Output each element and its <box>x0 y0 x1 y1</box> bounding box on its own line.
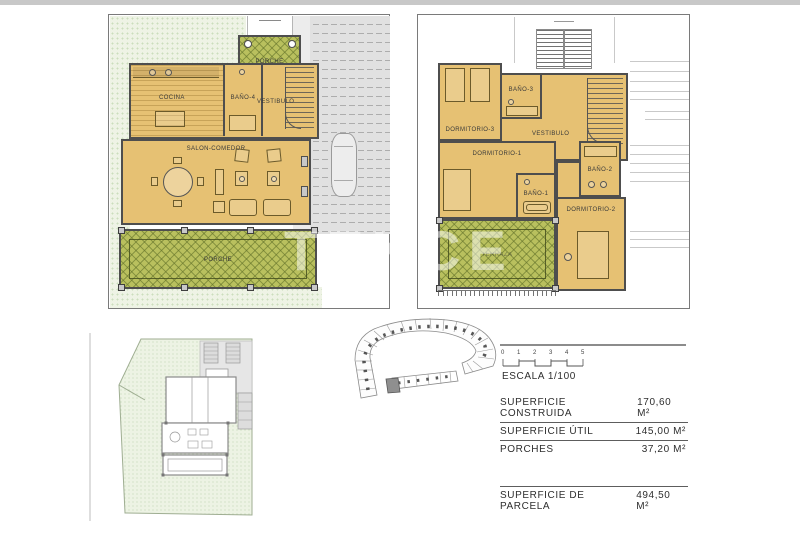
roof-line <box>630 91 689 92</box>
room-cocina: COCINA <box>131 65 223 136</box>
scale-bar <box>502 357 586 369</box>
highlighted-plot <box>386 378 400 393</box>
footprint-upper <box>166 377 236 423</box>
site-stair <box>204 343 218 363</box>
porch-column <box>247 284 254 291</box>
roof-line <box>630 163 689 164</box>
car-icon <box>331 133 357 197</box>
stair-flight <box>537 30 563 68</box>
shower-icon <box>229 115 256 131</box>
footprint-porch-bottom <box>163 455 227 475</box>
terrace-column <box>552 217 559 224</box>
scale-tick-4: 4 <box>565 350 568 356</box>
room-bano4: BAÑO-4 <box>225 65 261 136</box>
porch-column <box>244 40 252 48</box>
scale-tick-0: 0 <box>501 350 504 356</box>
bed-icon <box>470 68 490 102</box>
coffee-table <box>213 201 225 213</box>
area-label: SUPERFICIE ÚTIL <box>500 426 593 437</box>
sink-icon <box>508 99 514 105</box>
room-label-bano4: BAÑO-4 <box>225 95 261 101</box>
exterior-staircase <box>536 29 592 69</box>
bathtub-icon <box>506 106 538 116</box>
bathtub-icon <box>584 146 617 157</box>
chair <box>173 157 182 164</box>
bathtub-icon <box>523 201 551 214</box>
room-dormitorio3: DORMITORIO-3 <box>438 63 502 141</box>
room-salon-comedor: SALON-COMEDOR <box>121 139 311 225</box>
chair <box>173 200 182 207</box>
landing-line <box>514 17 515 63</box>
roof-line <box>630 81 689 82</box>
porch-column <box>311 284 318 291</box>
divider-line <box>500 344 686 346</box>
sink-icon <box>600 181 607 188</box>
roof-line <box>630 61 689 62</box>
table-row: SUPERFICIE CONSTRUIDA 170,60 M² <box>500 394 688 423</box>
floor-plan-sheet: PORCHE COCINA BAÑO-4 VESTIBULO <box>0 0 800 533</box>
room-label-bano3: BAÑO-3 <box>502 87 540 93</box>
toilet-icon <box>239 69 245 75</box>
room-label-vestibulo-upper: VESTIBULO <box>532 131 569 137</box>
area-label: PORCHES <box>500 444 554 455</box>
roof-line <box>630 239 689 240</box>
scale-tick-5: 5 <box>581 350 584 356</box>
porch-column <box>288 40 296 48</box>
roof-line <box>630 154 689 155</box>
porch-column <box>118 227 125 234</box>
roof-line <box>630 231 689 232</box>
room-label-dormitorio1: DORMITORIO-1 <box>440 151 554 157</box>
parcel-value: 494,50 M² <box>636 490 686 512</box>
room-label-cocina: COCINA <box>159 95 185 101</box>
garden-texture <box>110 287 322 308</box>
bed-icon <box>445 68 465 102</box>
nightstand-icon <box>564 253 572 261</box>
table-row: SUPERFICIE ÚTIL 145,00 M² <box>500 423 688 441</box>
dimension-mark <box>259 20 281 24</box>
dining-table <box>163 167 193 197</box>
chimney <box>301 156 308 167</box>
scale-label: ESCALA 1/100 <box>502 371 576 382</box>
armchair <box>266 148 281 162</box>
scale-tick-1: 1 <box>517 350 520 356</box>
kitchen-table <box>155 111 185 127</box>
parcel-label: SUPERFICIE DE PARCELA <box>500 490 636 512</box>
kitchen-counter <box>133 67 219 78</box>
sink-icon <box>588 181 595 188</box>
sink-icon <box>524 179 530 185</box>
porch-column <box>181 227 188 234</box>
area-value: 37,20 M² <box>642 444 686 455</box>
side-table <box>267 171 280 186</box>
table-row: SUPERFICIE DE PARCELA 494,50 M² <box>500 487 688 515</box>
cabinet <box>215 169 224 195</box>
house-upper-block: COCINA BAÑO-4 VESTIBULO <box>129 63 319 139</box>
armchair <box>234 148 249 163</box>
garden-texture <box>110 16 246 63</box>
lamp-icon <box>271 176 277 182</box>
sofa <box>263 199 291 216</box>
footprint-salon <box>162 423 228 453</box>
site-plan <box>88 333 283 525</box>
site-stair <box>226 343 240 363</box>
chimney <box>301 186 308 197</box>
porch-column <box>181 284 188 291</box>
roof-line <box>630 145 689 146</box>
room-label-dormitorio3: DORMITORIO-3 <box>440 127 500 133</box>
sofa <box>229 199 257 216</box>
chair <box>151 177 158 186</box>
scale-bar-ticks <box>503 359 583 366</box>
bed-icon <box>443 169 471 211</box>
top-border-strip <box>0 0 800 5</box>
terrace-balustrade <box>438 290 556 296</box>
room-label-bano1: BAÑO-1 <box>518 191 554 197</box>
area-value: 145,00 M² <box>636 426 686 437</box>
porch-column <box>118 284 125 291</box>
side-table <box>235 171 248 186</box>
driveway <box>310 16 390 234</box>
sink-icon <box>149 69 156 76</box>
room-label-salon: SALON-COMEDOR <box>123 146 309 152</box>
scale-bar-steps <box>503 361 583 366</box>
footprint-porch-top <box>206 369 228 377</box>
roof-line <box>630 247 689 248</box>
area-value: 170,60 M² <box>637 397 686 419</box>
entry-walkway <box>247 16 293 35</box>
roof-line <box>645 111 689 112</box>
porch-column <box>247 227 254 234</box>
roof-line <box>645 119 689 120</box>
plot-band-outline <box>355 319 496 398</box>
area-label: SUPERFICIE CONSTRUIDA <box>500 397 637 419</box>
room-bano1: BAÑO-1 <box>516 173 556 219</box>
room-bano2: BAÑO-2 <box>579 141 621 197</box>
roof-line <box>630 172 689 173</box>
parcel-row: SUPERFICIE DE PARCELA 494,50 M² <box>500 486 688 515</box>
watermark-text: TEKCE <box>284 218 514 283</box>
roof-line <box>630 181 689 182</box>
bed-icon <box>577 231 609 279</box>
dimension-mark <box>554 21 574 25</box>
roof-line <box>630 71 689 72</box>
room-dormitorio2: DORMITORIO-2 <box>556 197 626 291</box>
room-vestibulo: VESTIBULO <box>263 65 316 136</box>
landing-line <box>614 17 615 63</box>
table-row: PORCHES 37,20 M² <box>500 441 688 458</box>
lamp-icon <box>239 176 245 182</box>
room-bano3: BAÑO-3 <box>500 73 542 119</box>
room-label-bano2: BAÑO-2 <box>581 167 619 173</box>
plot-row-outline <box>392 371 458 389</box>
chair <box>197 177 204 186</box>
room-label-dormitorio2: DORMITORIO-2 <box>558 207 624 213</box>
areas-table: SUPERFICIE CONSTRUIDA 170,60 M² SUPERFIC… <box>500 394 688 458</box>
urbanization-plan <box>352 316 502 418</box>
scale-tick-2: 2 <box>533 350 536 356</box>
hob-icon <box>165 69 172 76</box>
scale-tick-3: 3 <box>549 350 552 356</box>
roof-line <box>630 99 689 100</box>
stair-flight <box>565 30 591 68</box>
